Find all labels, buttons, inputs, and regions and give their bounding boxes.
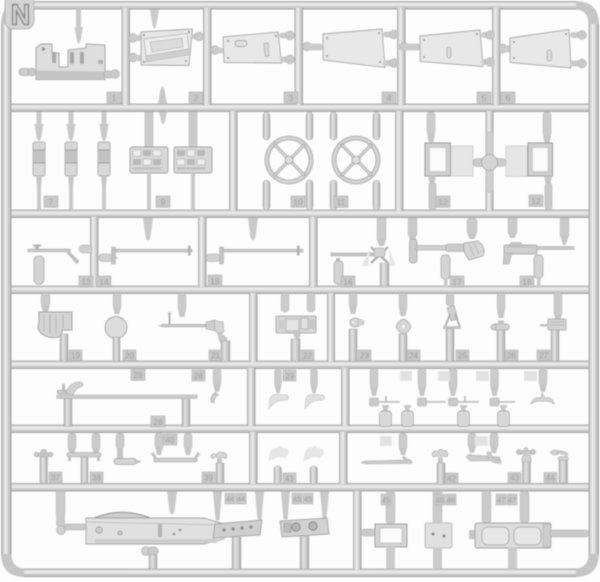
svg-text:47: 47 [497,496,505,505]
svg-text:10: 10 [293,197,303,207]
svg-text:4: 4 [387,93,392,103]
svg-text:45: 45 [304,495,312,504]
svg-text:5: 5 [482,93,487,103]
svg-text:11: 11 [337,197,346,207]
svg-text:21: 21 [211,352,220,361]
svg-text:42: 42 [447,475,456,484]
svg-text:19: 19 [71,352,80,361]
svg-text:43: 43 [510,474,519,483]
svg-text:7: 7 [49,197,54,207]
svg-text:22: 22 [303,352,312,361]
svg-text:44: 44 [226,495,234,504]
svg-text:6: 6 [506,93,511,103]
svg-text:23: 23 [360,352,369,361]
svg-text:9: 9 [161,197,166,207]
svg-text:45: 45 [293,495,301,504]
svg-text:13: 13 [81,277,91,287]
svg-text:46: 46 [436,496,444,505]
svg-text:26: 26 [507,352,516,361]
svg-text:39: 39 [204,474,213,483]
svg-text:3: 3 [289,93,294,103]
svg-text:40: 40 [166,436,175,445]
svg-text:12: 12 [531,196,541,206]
svg-text:16: 16 [343,277,353,287]
svg-text:28: 28 [194,372,203,381]
svg-text:2: 2 [194,93,199,103]
svg-text:41: 41 [285,475,294,484]
svg-text:25: 25 [458,352,467,361]
svg-text:20: 20 [125,352,134,361]
svg-text:15: 15 [210,276,220,286]
svg-text:27: 27 [539,352,548,361]
svg-text:46: 46 [447,496,455,505]
svg-text:47: 47 [508,496,516,505]
svg-text:28: 28 [133,370,143,380]
svg-text:44: 44 [546,474,555,483]
svg-text:38: 38 [92,474,101,483]
svg-text:14: 14 [99,277,109,287]
svg-text:37: 37 [51,474,60,483]
svg-text:17: 17 [452,277,462,287]
svg-text:12: 12 [438,197,448,207]
svg-text:1: 1 [112,93,117,103]
svg-text:45: 45 [382,496,390,505]
svg-text:24: 24 [409,352,418,361]
svg-text:28: 28 [153,417,163,427]
svg-text:18: 18 [522,277,532,287]
svg-text:29: 29 [285,372,294,381]
svg-text:44: 44 [237,495,245,504]
